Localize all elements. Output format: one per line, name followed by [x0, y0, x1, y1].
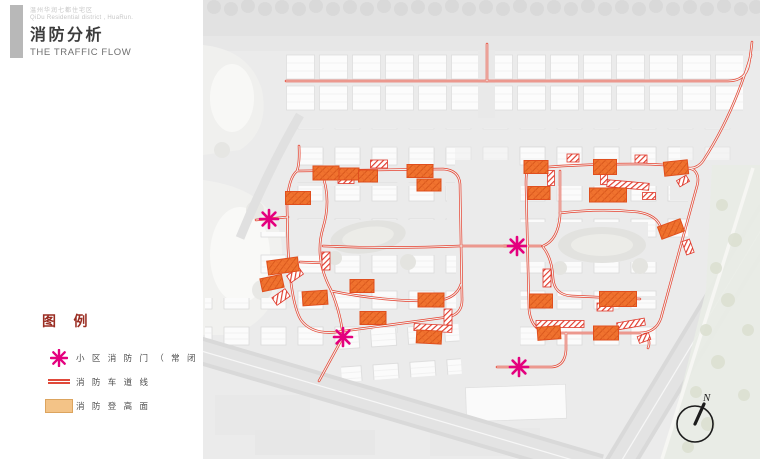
legend-label: 消 防 车 道 线 [76, 376, 150, 388]
legend-item-fire-gate: 小 区 消 防 门 （ 常 闭 ） [42, 347, 202, 368]
slide: { "header": { "project_line_zh": "温州华润七都… [0, 0, 760, 459]
fire-gate-marker [508, 237, 526, 255]
compass-north-label: N [702, 392, 711, 404]
fire-gate-asterisk-icon [42, 349, 76, 367]
project-name-zh: 温州华润七都住宅区 [30, 8, 133, 15]
page-subtitle: THE TRAFFIC FLOW [30, 47, 133, 58]
legend-label: 小 区 消 防 门 （ 常 闭 ） [76, 352, 214, 364]
legend-item-fire-lane: 消 防 车 道 线 [42, 371, 202, 392]
project-name-en: QiDu Residential district , HuaRun. [30, 15, 133, 22]
fire-gate-marker [510, 358, 528, 376]
fire-gate-marker [334, 328, 352, 346]
header-accent-bar [10, 5, 23, 58]
legend-title: 图 例 [42, 311, 202, 331]
fire-gate-marker [260, 210, 278, 228]
legend: 图 例 小 区 消 防 门 （ 常 闭 ） 消 防 车 道 线 消 防 登 高 … [42, 311, 202, 419]
legend-label: 消 防 登 高 面 [76, 400, 150, 412]
townhouse-strip [285, 50, 743, 160]
site-plan-map: N [203, 0, 760, 459]
page-title: 消防分析 [30, 26, 133, 45]
fire-lane-double-line-icon [42, 378, 76, 385]
slide-header: 温州华润七都住宅区 QiDu Residential district , Hu… [0, 0, 200, 80]
fire-platform-swatch-icon [42, 399, 76, 413]
legend-item-fire-platform: 消 防 登 高 面 [42, 395, 202, 416]
